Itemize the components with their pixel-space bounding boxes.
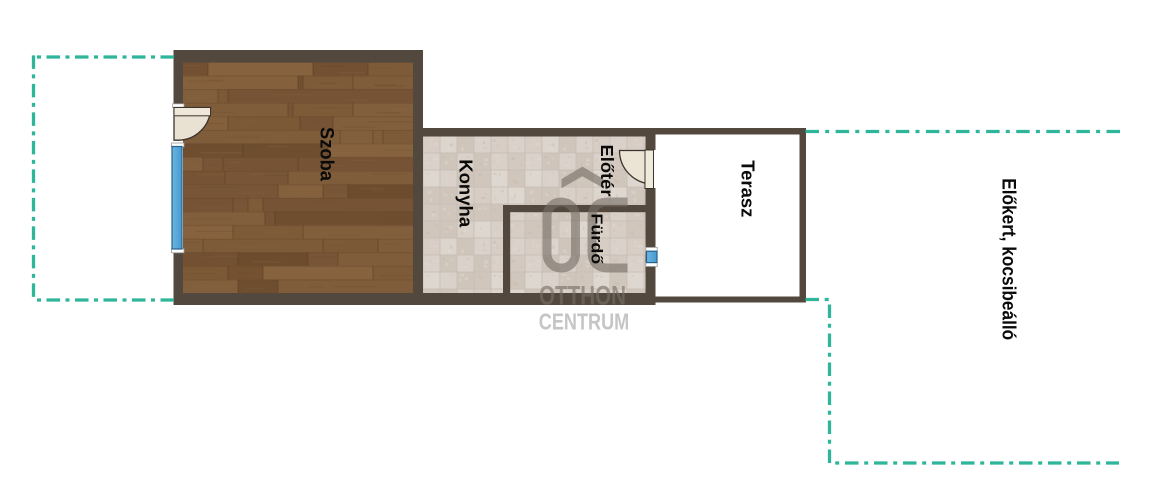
- svg-text:Fürdő: Fürdő: [588, 213, 605, 264]
- svg-text:OTTHON: OTTHON: [539, 281, 626, 311]
- svg-text:Előtér: Előtér: [597, 145, 617, 197]
- svg-text:Előkert, kocsibeálló: Előkert, kocsibeálló: [998, 178, 1019, 340]
- svg-text:Konyha: Konyha: [456, 159, 476, 228]
- svg-text:Terasz: Terasz: [738, 160, 758, 217]
- svg-text:Szoba: Szoba: [315, 127, 336, 181]
- svg-text:CENTRUM: CENTRUM: [539, 309, 629, 335]
